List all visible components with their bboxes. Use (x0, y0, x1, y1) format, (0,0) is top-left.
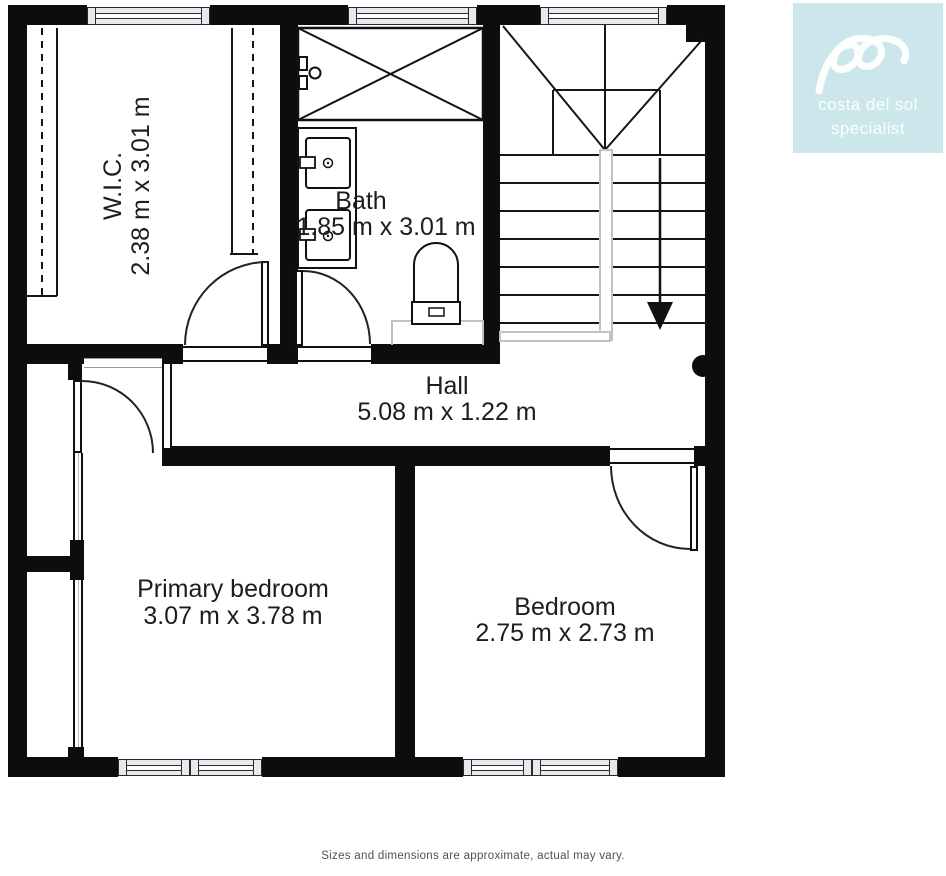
room-dims: 2.38 m x 3.01 m (127, 46, 155, 326)
logo-text-line2: specialist (793, 119, 943, 139)
open-passage (162, 364, 172, 448)
stair-divider (600, 150, 612, 340)
stair-landing-edge (500, 332, 610, 341)
door-swing-arc (82, 380, 154, 453)
door-swing-arc (184, 261, 267, 345)
door-threshold (298, 346, 371, 362)
window (118, 759, 190, 776)
disclaimer-text: Sizes and dimensions are approximate, ac… (0, 850, 946, 862)
window (463, 759, 532, 776)
faucet-icon (299, 57, 321, 89)
wall-segment (395, 446, 415, 777)
stairs-down-arrow-icon (647, 158, 673, 330)
window (87, 7, 210, 25)
room-label-primary-name: Primary bedroom (113, 575, 353, 603)
wall-segment (371, 344, 500, 364)
wall-stub (68, 364, 82, 380)
room-label-bath-dims: 1.85 m x 3.01 m (266, 213, 506, 241)
door-leaf (690, 466, 698, 551)
wall-pivot-dot (692, 355, 714, 377)
window (348, 7, 477, 25)
room-label-bath-name: Bath (261, 187, 461, 215)
staircase-icon (500, 25, 705, 323)
wall-stub (70, 540, 84, 580)
wall-segment (686, 25, 705, 42)
wall-stub (68, 747, 84, 757)
wall-face-lines (84, 358, 162, 368)
window (532, 759, 618, 776)
wall-segment (8, 757, 118, 777)
room-label-hall-name: Hall (347, 372, 547, 400)
door-swing-arc (610, 466, 690, 550)
wall-segment (483, 25, 500, 364)
room-label-primary-dims: 3.07 m x 3.78 m (113, 602, 353, 630)
wall-stub (27, 556, 70, 572)
wall-segment (477, 5, 540, 25)
door-leaf (73, 380, 82, 453)
room-label-hall-dims: 5.08 m x 1.22 m (327, 398, 567, 426)
window (190, 759, 262, 776)
door-swing-arc (303, 270, 371, 344)
room-label-wic: W.I.C. 2.38 m x 3.01 m (99, 46, 157, 326)
room-label-bedroom-dims: 2.75 m x 2.73 m (445, 619, 685, 647)
brand-logo: costa del sol specialist (793, 3, 943, 153)
wall-segment (262, 757, 463, 777)
toilet-icon (392, 243, 483, 345)
door-leaf (295, 270, 303, 346)
wall-segment (618, 757, 725, 777)
wall-segment (705, 5, 725, 777)
window (540, 7, 667, 25)
wall-segment (162, 446, 610, 466)
window (73, 453, 83, 540)
room-name: W.I.C. (99, 46, 127, 326)
wall-segment (694, 446, 705, 466)
window (73, 580, 83, 747)
room-label-bedroom-name: Bedroom (445, 593, 685, 621)
shower-tub-icon (298, 28, 483, 120)
floor-plan: W.I.C. 2.38 m x 3.01 m Bath 1.85 m x 3.0… (0, 0, 946, 876)
door-threshold (183, 346, 267, 362)
wall-segment (210, 5, 348, 25)
wall-segment (8, 5, 27, 777)
logo-text-line1: costa del sol (793, 95, 943, 115)
door-threshold (610, 448, 694, 464)
